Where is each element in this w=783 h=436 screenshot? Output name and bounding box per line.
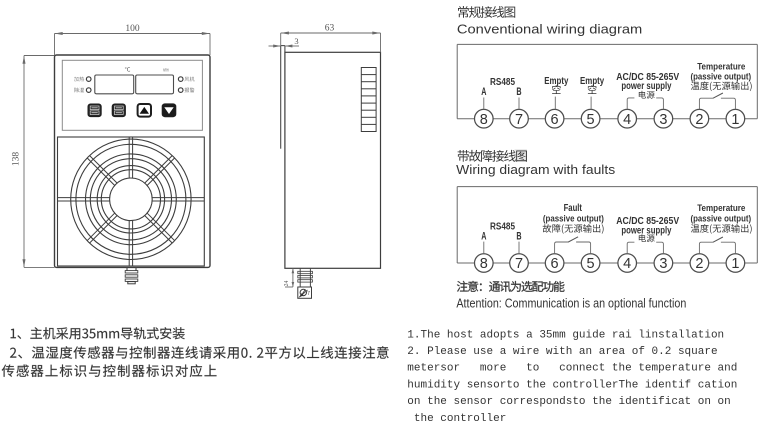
svg-text:(passive output): (passive output) [691, 72, 752, 83]
svg-text:B: B [516, 86, 521, 98]
svg-text:metersor more to connect: metersor more to connect the temperature… [407, 363, 737, 375]
svg-text:power supply: power supply [621, 225, 671, 236]
svg-text:Temperature: Temperature [697, 203, 745, 214]
svg-text:6: 6 [551, 112, 559, 128]
svg-text:5: 5 [587, 112, 595, 128]
svg-text:B: B [516, 231, 521, 243]
svg-text:(passive output): (passive output) [543, 214, 604, 225]
svg-text:138: 138 [12, 152, 22, 167]
svg-text:24: 24 [284, 281, 290, 287]
svg-text:8: 8 [480, 112, 488, 128]
svg-text:8: 8 [480, 256, 488, 272]
svg-text:3: 3 [659, 256, 667, 272]
svg-text:1: 1 [731, 256, 739, 272]
svg-text:7: 7 [515, 256, 523, 272]
svg-text:100: 100 [125, 24, 140, 34]
svg-text:5: 5 [587, 256, 595, 272]
svg-text:6: 6 [551, 256, 559, 272]
svg-text:A: A [481, 231, 486, 243]
svg-text:A: A [481, 86, 486, 98]
svg-text:RS485: RS485 [490, 221, 515, 232]
svg-text:1: 1 [731, 112, 739, 128]
svg-text:4: 4 [623, 112, 631, 128]
svg-text:3: 3 [294, 36, 298, 46]
svg-text:2. Please use a wire with an a: 2. Please use a wire with an area of 0.2… [407, 346, 717, 358]
svg-text:the controller: the controller [407, 413, 506, 425]
svg-text:63: 63 [325, 24, 335, 34]
svg-text:Wiring diagram with faults: Wiring diagram with faults [456, 162, 616, 177]
svg-text:2: 2 [695, 112, 703, 128]
svg-text:RS485: RS485 [490, 77, 515, 88]
svg-text:Fault: Fault [564, 203, 583, 214]
svg-text:1.The host adopts a 35mm guide: 1.The host adopts a 35mm guide rai linst… [407, 329, 724, 341]
svg-text:on the sensor correspondsto th: on the sensor correspondsto the identifi… [407, 396, 730, 408]
svg-text:2: 2 [695, 256, 703, 272]
svg-text:7: 7 [307, 291, 310, 297]
svg-text:power supply: power supply [621, 81, 671, 92]
svg-text:4: 4 [623, 256, 631, 272]
svg-text:%RH: %RH [163, 68, 169, 74]
svg-text:Conventional wiring diagram: Conventional wiring diagram [457, 22, 642, 37]
svg-text:Attention: Communication is an: Attention: Communication is an optional … [456, 295, 686, 310]
svg-text:humidity sensorto the controll: humidity sensorto the controllerThe iden… [407, 379, 737, 391]
svg-text:(passive output): (passive output) [691, 214, 752, 225]
svg-text:3: 3 [659, 112, 667, 128]
svg-text:7: 7 [515, 112, 523, 128]
